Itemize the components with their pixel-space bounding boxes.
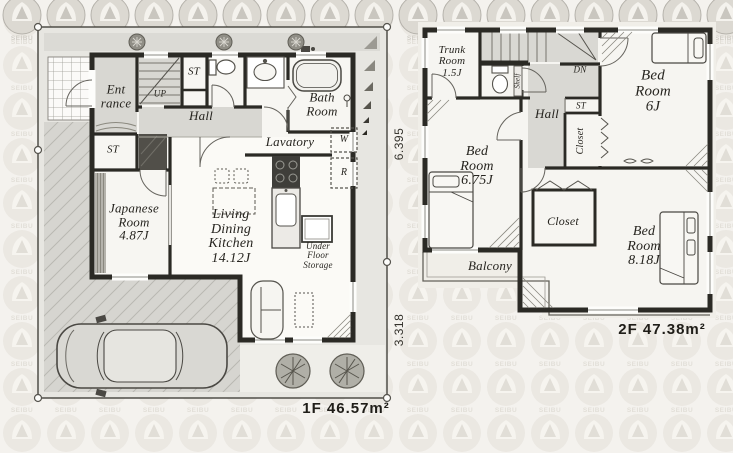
toilet-icon-1f [209,60,235,75]
stove-icon [272,156,300,188]
dimension-upper: 6.395 [393,128,405,161]
room-label-lavatory: Lavatory [266,135,315,149]
balcony-label: Balcony [468,259,512,273]
room-label-japanese: Japanese Room 4.87J [109,202,159,243]
bed-icon-6j [652,33,706,63]
washer-label: W [340,135,349,145]
sofa-icon [251,281,283,339]
car-icon [57,315,227,397]
stairs-dn-label: DN [574,65,587,74]
room-label-bed6: Bed Room 6J [635,69,671,116]
setback-strip [44,33,380,51]
closet-upper-label: Closet [576,128,586,155]
room-label-st-lower: ST [107,144,119,155]
room-label-trunk: Trunk Room 1.5J [439,45,466,79]
room-label-st-2f: ST [576,101,586,110]
sink-icon [276,194,296,226]
porch-tiles [48,57,92,120]
dimension-lower: 3.318 [393,314,405,347]
room-label-ldk: Living Dining Kitchen 14.12J [209,208,254,266]
floorplan-page: { "watermark": { "brand": "SEIBU" }, "fl… [0,0,733,453]
bed-icon-818j [660,212,698,284]
floor1-area-label: 1F 46.57m² [302,401,390,417]
room-label-bed818: Bed Room 8.18J [627,225,660,269]
room-label-st-upper: ST [188,66,200,77]
room-label-hall-2f: Hall [535,107,559,121]
washbasin-icon [247,57,284,88]
shelf-label: Shelf [514,74,521,89]
room-label-hall-1f: Hall [189,109,213,123]
kitchen-counter [272,156,300,248]
room-label-bed675: Bed Room 6.75J [460,145,493,189]
floor2-area-label: 2F 47.38m² [618,322,706,338]
stairs-up-label: UP [154,89,166,98]
room-label-bath: Bath Room [306,90,337,117]
under-floor-storage-box [302,216,332,242]
closet-lower-label: Closet [547,215,579,227]
room-label-entrance: Ent rance [101,82,132,109]
under-floor-label: Under Floor Storage [303,242,332,270]
fridge-label: R [341,168,347,178]
toilet-icon-2f [492,66,508,93]
